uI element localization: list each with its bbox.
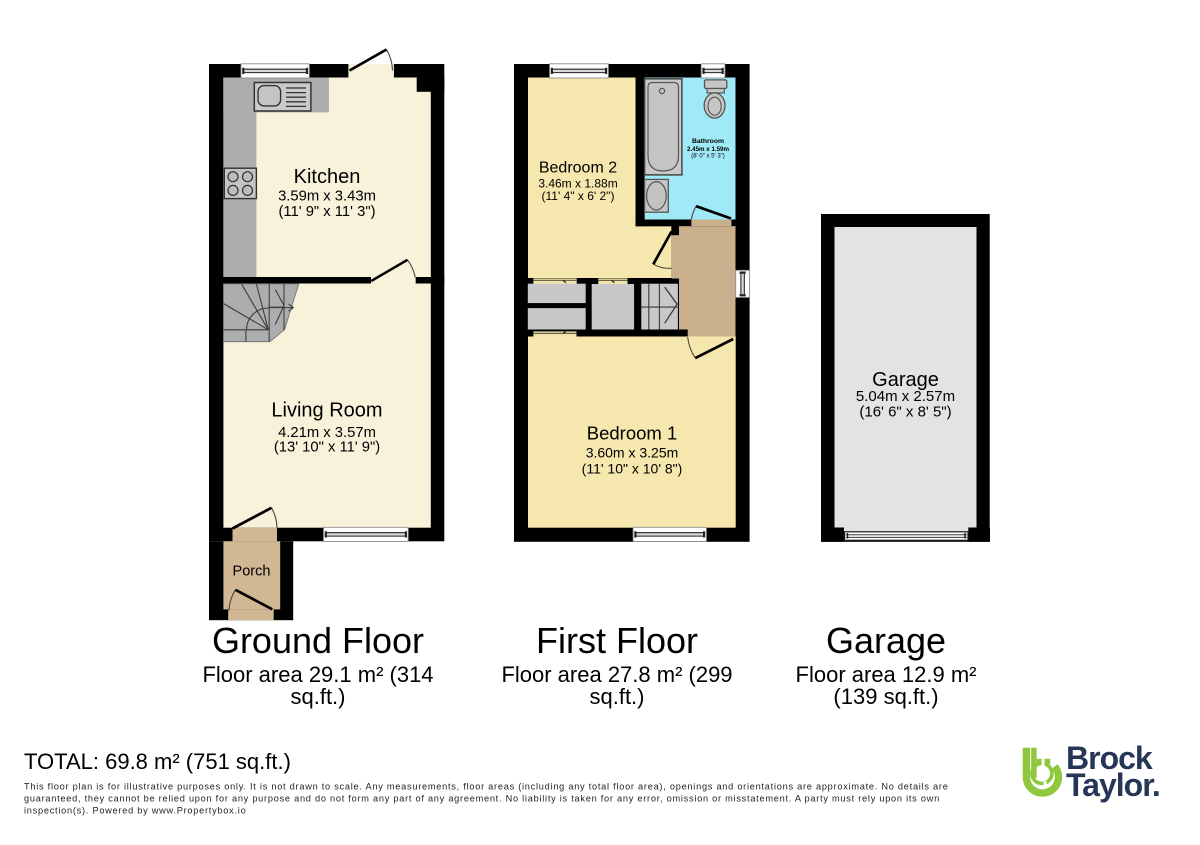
svg-text:(13' 10" x 11' 9"): (13' 10" x 11' 9"): [274, 440, 380, 456]
svg-text:Porch: Porch: [233, 564, 271, 580]
svg-text:This floor plan is for illustr: This floor plan is for illustrative purp…: [24, 782, 949, 792]
svg-text:(11' 10" x 10' 8"): (11' 10" x 10' 8"): [582, 461, 683, 477]
svg-text:2.45m x 1.59m: 2.45m x 1.59m: [687, 146, 729, 153]
svg-text:Bathroom: Bathroom: [692, 138, 724, 145]
svg-text:3.59m x 3.43m: 3.59m x 3.43m: [278, 189, 376, 205]
svg-text:Living Room: Living Room: [271, 400, 382, 422]
svg-text:5.04m x 2.57m: 5.04m x 2.57m: [856, 388, 955, 405]
svg-text:First Floor: First Floor: [536, 620, 698, 661]
svg-text:Ground Floor: Ground Floor: [212, 620, 424, 661]
svg-text:Bedroom 1: Bedroom 1: [587, 423, 678, 444]
svg-text:sq.ft.): sq.ft.): [589, 684, 644, 709]
svg-text:Bedroom 2: Bedroom 2: [539, 160, 617, 177]
svg-text:(139 sq.ft.): (139 sq.ft.): [833, 684, 938, 709]
svg-text:sq.ft.): sq.ft.): [290, 684, 345, 709]
svg-text:(11' 4" x 6' 2"): (11' 4" x 6' 2"): [542, 189, 615, 203]
svg-text:guaranteed, they cannot be rel: guaranteed, they cannot be relied upon f…: [24, 794, 940, 804]
svg-text:(16' 6" x 8' 5"): (16' 6" x 8' 5"): [859, 404, 951, 421]
svg-text:Kitchen: Kitchen: [294, 166, 361, 188]
svg-text:Taylor.: Taylor.: [1066, 767, 1160, 803]
svg-text:inspection(s). Powered by www.: inspection(s). Powered by www.Propertybo…: [24, 806, 246, 816]
svg-text:3.60m x 3.25m: 3.60m x 3.25m: [586, 445, 679, 461]
svg-text:Garage: Garage: [826, 620, 946, 661]
svg-text:(11' 9" x 11' 3"): (11' 9" x 11' 3"): [278, 204, 375, 220]
svg-text:TOTAL: 69.8 m² (751 sq.ft.): TOTAL: 69.8 m² (751 sq.ft.): [24, 749, 291, 774]
svg-text:(8' 0" x 5' 3"): (8' 0" x 5' 3"): [691, 154, 725, 160]
